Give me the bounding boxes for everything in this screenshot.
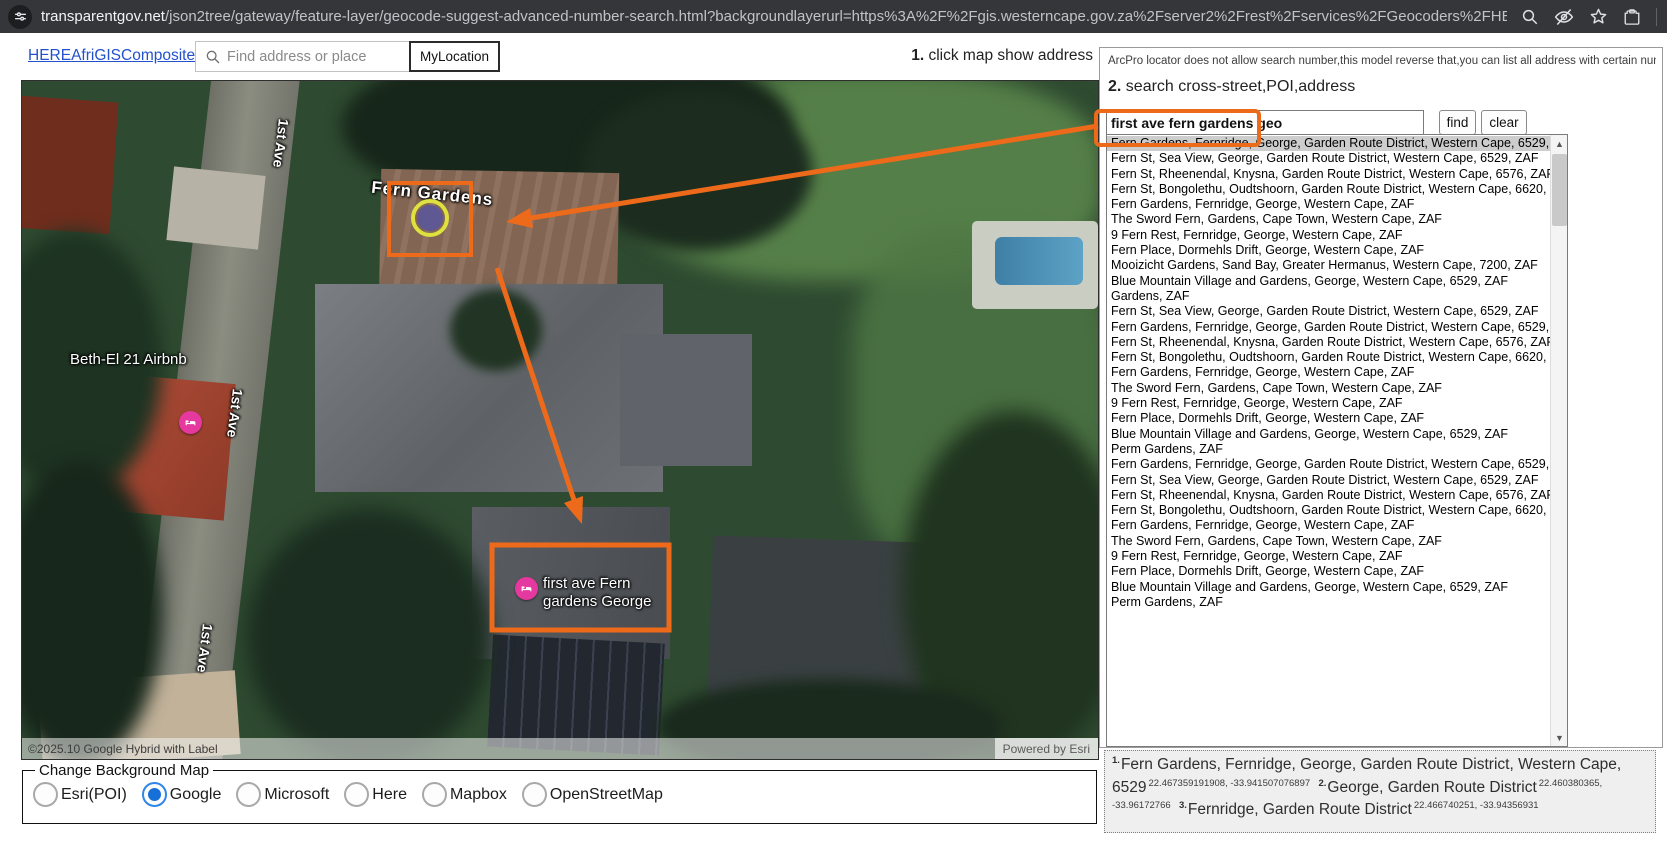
result-row[interactable]: Fern St, Bongolethu, Oudtshoorn, Garden … <box>1107 503 1550 518</box>
geocode-candidates-box: 1.Fern Gardens, Fernridge, George, Garde… <box>1104 750 1656 833</box>
step1-instruction: 1. click map show address <box>911 47 1093 65</box>
result-row[interactable]: Fern Gardens, Fernridge, George, Western… <box>1107 197 1550 212</box>
map-label-airbnb: Beth-El 21 Airbnb <box>70 351 187 368</box>
background-map-option[interactable]: Here <box>344 782 407 807</box>
candidate-coordinates: 22.466740251, -33.94356931 <box>1414 800 1539 811</box>
radio-icon[interactable] <box>33 782 58 807</box>
step1-text: click map show address <box>924 47 1093 64</box>
result-row[interactable]: Fern St, Bongolethu, Oudtshoorn, Garden … <box>1107 182 1550 197</box>
result-row[interactable]: 9 Fern Rest, Fernridge, George, Western … <box>1107 228 1550 243</box>
result-row[interactable]: Fern Gardens, Fernridge, George, Garden … <box>1107 457 1550 472</box>
results-rows: Fern Gardens, Fernridge, George, Garden … <box>1107 136 1550 610</box>
scrollbar-thumb[interactable] <box>1552 154 1567 226</box>
poi-label-line2: gardens George <box>543 593 651 611</box>
background-map-fieldset: Change Background Map Esri(POI) Google M… <box>22 762 1097 824</box>
lodging-marker-first-ave[interactable] <box>515 577 538 600</box>
result-row[interactable]: The Sword Fern, Gardens, Cape Town, West… <box>1107 534 1550 549</box>
bed-icon <box>184 416 197 429</box>
step2-instruction: 2. search cross-street,POI,address <box>1108 78 1355 96</box>
result-row[interactable]: The Sword Fern, Gardens, Cape Town, West… <box>1107 212 1550 227</box>
find-address-searchbox[interactable] <box>195 41 416 72</box>
result-row[interactable]: Fern Place, Dormehls Drift, George, West… <box>1107 564 1550 579</box>
map-canvas[interactable]: Fern Gardens Beth-El 21 Airbnb first ave… <box>21 80 1099 760</box>
candidate-coordinates: 22.467359191908, -33.941507076897 <box>1148 778 1310 789</box>
geocode-search-input[interactable] <box>1106 110 1424 135</box>
radio-icon[interactable] <box>522 782 547 807</box>
browser-window: transparentgov.net/json2tree/gateway/fea… <box>0 0 1667 855</box>
scroll-up-icon[interactable]: ▲ <box>1551 135 1568 152</box>
scroll-down-icon[interactable]: ▼ <box>1551 729 1568 746</box>
radio-label: Here <box>372 786 407 804</box>
candidate-number: 1. <box>1112 755 1120 766</box>
result-row[interactable]: Fern St, Rheenendal, Knysna, Garden Rout… <box>1107 167 1550 182</box>
site-settings-icon[interactable] <box>8 5 32 29</box>
url-path: /json2tree/gateway/feature-layer/geocode… <box>165 8 1507 25</box>
url-text[interactable]: transparentgov.net/json2tree/gateway/fea… <box>41 8 1507 25</box>
result-row[interactable]: Fern Gardens, Fernridge, George, Garden … <box>1107 320 1550 335</box>
result-row[interactable]: Perm Gardens, ZAF <box>1107 595 1550 610</box>
radio-label: Mapbox <box>450 786 507 804</box>
locator-service-link[interactable]: HEREAfriGISComposite <box>28 47 195 65</box>
app-toolbar: HEREAfriGISComposite MyLocation 1. click… <box>0 33 1099 80</box>
radio-icon[interactable] <box>344 782 369 807</box>
radio-label: Esri(POI) <box>61 786 127 804</box>
clear-button[interactable]: clear <box>1481 110 1527 135</box>
geocode-search-row: find clear <box>1100 110 1662 136</box>
radio-label: Microsoft <box>264 786 329 804</box>
background-map-legend: Change Background Map <box>35 762 213 779</box>
results-scrollbar[interactable]: ▲ ▼ <box>1550 135 1567 746</box>
candidate-number: 2. <box>1318 778 1326 789</box>
result-row[interactable]: Gardens, ZAF <box>1107 289 1550 304</box>
result-row[interactable]: Blue Mountain Village and Gardens, Georg… <box>1107 427 1550 442</box>
radio-label: Google <box>170 786 222 804</box>
toolbar-divider <box>1656 8 1657 26</box>
background-map-option[interactable]: Esri(POI) <box>33 782 127 807</box>
step2-text: search cross-street,POI,address <box>1121 78 1355 95</box>
attribution-esri: Powered by Esri <box>995 738 1098 759</box>
result-row[interactable]: Fern St, Rheenendal, Knysna, Garden Rout… <box>1107 488 1550 503</box>
radio-icon[interactable] <box>236 782 261 807</box>
background-map-option[interactable]: OpenStreetMap <box>522 782 663 807</box>
extensions-icon[interactable] <box>1623 8 1641 26</box>
map-attribution: ©2025.10 Google Hybrid with Label Powere… <box>22 738 1098 759</box>
lodging-marker-airbnb[interactable] <box>179 411 202 434</box>
step2-number: 2. <box>1108 78 1121 95</box>
result-row[interactable]: The Sword Fern, Gardens, Cape Town, West… <box>1107 381 1550 396</box>
bookmark-star-icon[interactable] <box>1589 7 1608 26</box>
background-map-options: Esri(POI) Google Microsoft Here <box>33 782 1096 807</box>
panel-note: ArcPro locator does not allow search num… <box>1108 55 1656 67</box>
result-row[interactable]: Fern St, Bongolethu, Oudtshoorn, Garden … <box>1107 350 1550 365</box>
results-listbox[interactable]: Fern Gardens, Fernridge, George, Garden … <box>1106 134 1568 747</box>
radio-label: OpenStreetMap <box>550 786 663 804</box>
result-row[interactable]: Fern Place, Dormehls Drift, George, West… <box>1107 243 1550 258</box>
geocode-candidate: 3.Fernridge, Garden Route District22.466… <box>1179 801 1543 818</box>
background-map-option[interactable]: Microsoft <box>236 782 329 807</box>
my-location-button[interactable]: MyLocation <box>409 41 500 72</box>
radio-icon[interactable] <box>142 782 167 807</box>
result-row[interactable]: Perm Gardens, ZAF <box>1107 442 1550 457</box>
result-row[interactable]: Fern Gardens, Fernridge, George, Western… <box>1107 365 1550 380</box>
eye-off-icon[interactable] <box>1554 7 1574 27</box>
result-row[interactable]: Fern St, Rheenendal, Knysna, Garden Rout… <box>1107 335 1550 350</box>
search-icon <box>205 49 221 65</box>
result-row[interactable]: Fern St, Sea View, George, Garden Route … <box>1107 151 1550 166</box>
background-map-option[interactable]: Mapbox <box>422 782 507 807</box>
candidate-number: 3. <box>1179 800 1187 811</box>
radio-icon[interactable] <box>422 782 447 807</box>
result-row[interactable]: Fern Gardens, Fernridge, George, Garden … <box>1107 136 1550 151</box>
find-button[interactable]: find <box>1439 110 1476 135</box>
result-row[interactable]: Fern Gardens, Fernridge, George, Western… <box>1107 518 1550 533</box>
bed-icon <box>520 582 533 595</box>
zoom-icon[interactable] <box>1521 8 1539 26</box>
candidate-address: George, Garden Route District <box>1327 779 1536 796</box>
background-map-option[interactable]: Google <box>142 782 222 807</box>
candidate-address: Fernridge, Garden Route District <box>1188 801 1412 818</box>
result-row[interactable]: Blue Mountain Village and Gardens, Georg… <box>1107 274 1550 289</box>
map-label-first-ave-poi: first ave Fern gardens George <box>543 575 651 611</box>
result-row[interactable]: Blue Mountain Village and Gardens, Georg… <box>1107 580 1550 595</box>
step1-number: 1. <box>911 47 924 64</box>
find-address-input[interactable] <box>227 49 415 65</box>
attribution-google: ©2025.10 Google Hybrid with Label <box>22 742 995 756</box>
result-row[interactable]: Mooizicht Gardens, Sand Bay, Greater Her… <box>1107 258 1550 273</box>
result-row[interactable]: Fern St, Sea View, George, Garden Route … <box>1107 473 1550 488</box>
result-row[interactable]: Fern St, Sea View, George, Garden Route … <box>1107 304 1550 319</box>
geocode-panel: ArcPro locator does not allow search num… <box>1099 47 1663 748</box>
url-domain: transparentgov.net <box>41 8 165 25</box>
result-row[interactable]: Fern Place, Dormehls Drift, George, West… <box>1107 411 1550 426</box>
result-row[interactable]: 9 Fern Rest, Fernridge, George, Western … <box>1107 549 1550 564</box>
poi-label-line1: first ave Fern <box>543 575 651 593</box>
result-row[interactable]: 9 Fern Rest, Fernridge, George, Western … <box>1107 396 1550 411</box>
browser-address-bar[interactable]: transparentgov.net/json2tree/gateway/fea… <box>0 0 1667 33</box>
